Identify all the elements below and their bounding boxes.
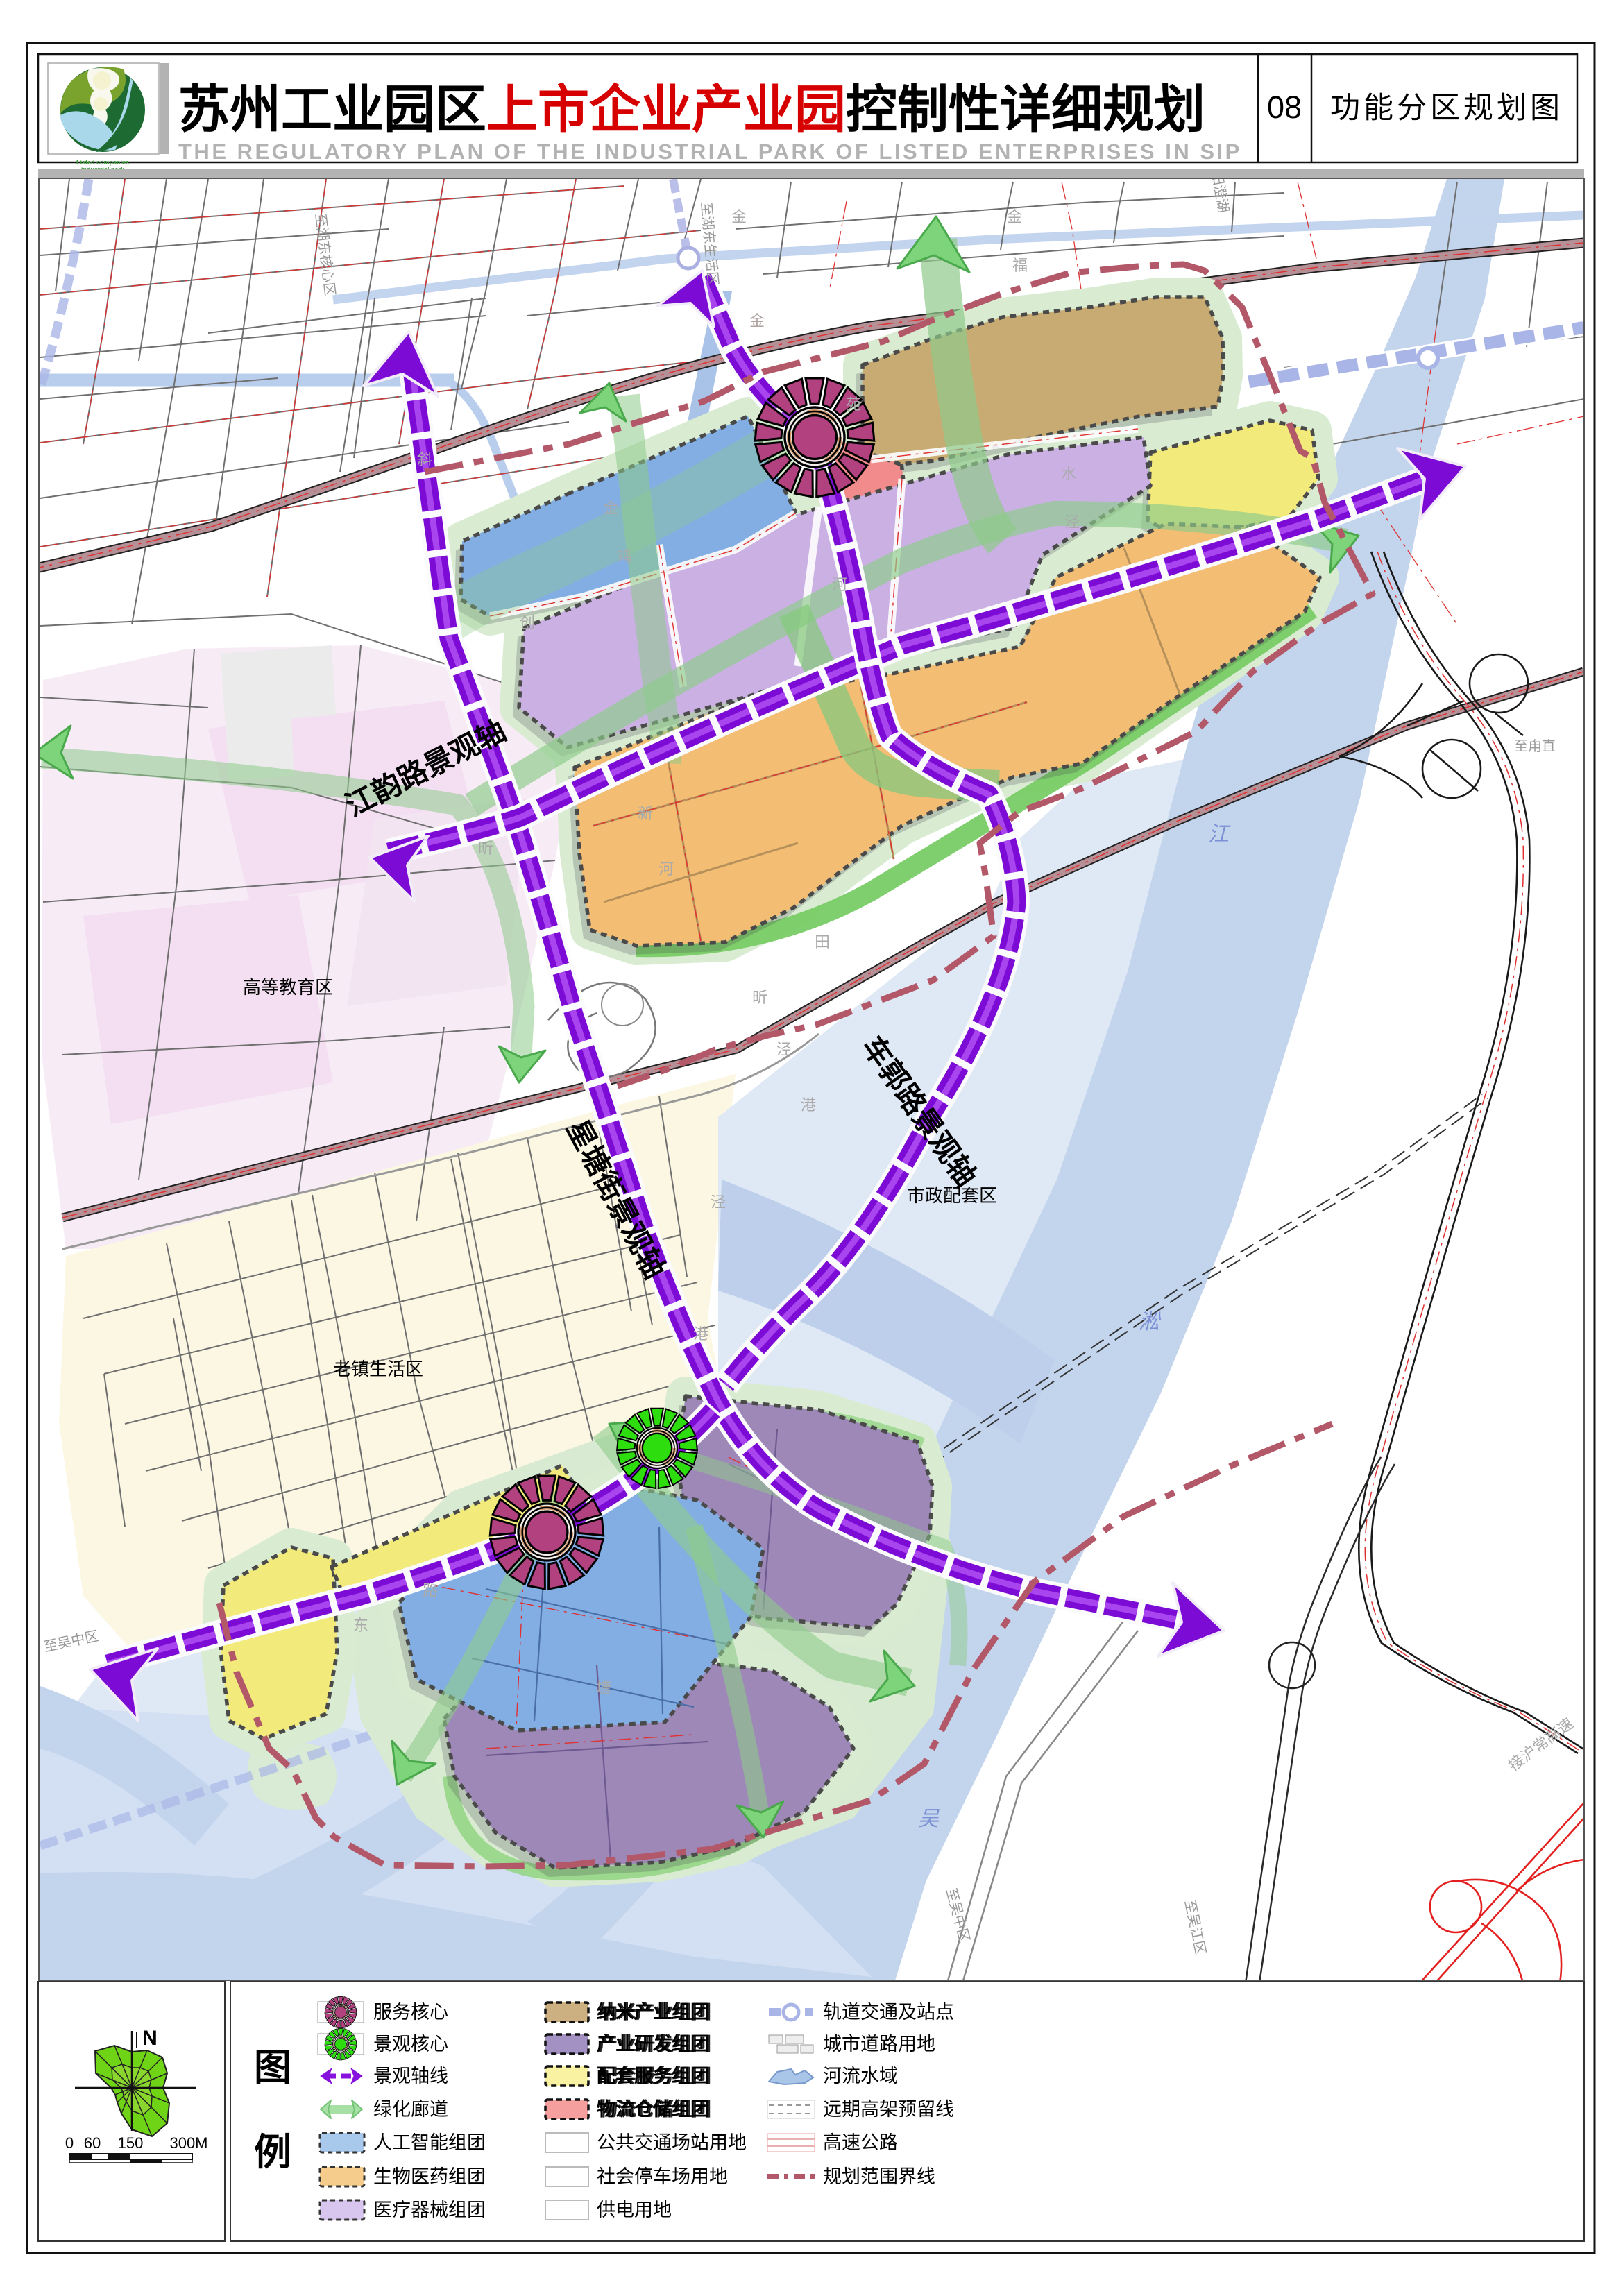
svg-text:河流水域: 河流水域 — [823, 2066, 898, 2086]
svg-text:水: 水 — [1061, 465, 1076, 482]
svg-text:纳米产业组团: 纳米产业组团 — [599, 2001, 711, 2023]
svg-text:08: 08 — [1267, 90, 1302, 125]
svg-text:城市道路用地: 城市道路用地 — [823, 2034, 935, 2055]
svg-text:东: 东 — [353, 1617, 368, 1634]
svg-text:河: 河 — [832, 576, 847, 593]
svg-text:港: 港 — [693, 1325, 708, 1343]
svg-text:吴: 吴 — [918, 1808, 940, 1830]
svg-text:泾: 泾 — [776, 1041, 792, 1058]
svg-text:医疗器械组团: 医疗器械组团 — [373, 2200, 486, 2220]
svg-text:0: 0 — [65, 2134, 74, 2152]
svg-text:Listed companies: Listed companies — [76, 159, 129, 166]
svg-text:河: 河 — [658, 860, 674, 878]
svg-text:生物医药组团: 生物医药组团 — [373, 2166, 486, 2187]
svg-text:例: 例 — [254, 2132, 291, 2173]
svg-text:供电用地: 供电用地 — [597, 2200, 672, 2220]
svg-text:老镇生活区: 老镇生活区 — [333, 1359, 423, 1379]
svg-text:配套服务组团: 配套服务组团 — [599, 2065, 711, 2086]
svg-text:300M: 300M — [169, 2134, 207, 2152]
svg-text:绿化廊道: 绿化廊道 — [373, 2099, 448, 2120]
svg-text:市政配套区: 市政配套区 — [907, 1185, 997, 1206]
svg-text:金: 金 — [1007, 208, 1022, 226]
svg-text:昕: 昕 — [478, 840, 493, 857]
svg-text:路: 路 — [423, 1582, 438, 1599]
svg-text:N: N — [142, 2027, 158, 2050]
svg-text:新: 新 — [638, 805, 653, 822]
svg-text:高速公路: 高速公路 — [823, 2132, 898, 2153]
svg-text:景观轴线: 景观轴线 — [373, 2066, 448, 2086]
svg-text:远期高架预留线: 远期高架预留线 — [823, 2099, 954, 2120]
svg-text:江: 江 — [1208, 823, 1231, 846]
svg-text:鸡: 鸡 — [617, 548, 632, 566]
svg-text:塘: 塘 — [596, 1679, 611, 1697]
svg-text:金: 金 — [749, 312, 765, 330]
svg-text:金: 金 — [731, 208, 747, 226]
svg-text:金: 金 — [603, 500, 618, 517]
svg-text:至甪直: 至甪直 — [1514, 738, 1556, 754]
svg-text:景观核心: 景观核心 — [373, 2034, 448, 2055]
svg-text:高等教育区: 高等教育区 — [243, 977, 333, 998]
svg-text:港: 港 — [801, 1096, 816, 1114]
svg-text:60: 60 — [84, 2134, 101, 2152]
svg-text:公共交通场站用地: 公共交通场站用地 — [597, 2132, 747, 2153]
svg-text:福: 福 — [1012, 257, 1028, 274]
svg-text:田: 田 — [815, 933, 830, 951]
svg-text:淞: 淞 — [1139, 1311, 1162, 1334]
svg-text:产业研发组团: 产业研发组团 — [599, 2033, 711, 2055]
svg-text:150: 150 — [118, 2134, 144, 2152]
svg-text:功能分区规划图: 功能分区规划图 — [1330, 92, 1563, 125]
svg-text:轨道交通及站点: 轨道交通及站点 — [823, 2002, 954, 2023]
svg-text:苑: 苑 — [846, 396, 861, 413]
svg-text:昕: 昕 — [752, 989, 767, 1006]
svg-text:规划范围界线: 规划范围界线 — [823, 2166, 935, 2187]
svg-text:社会停车场用地: 社会停车场用地 — [597, 2166, 728, 2187]
svg-text:THE REGULATORY PLAN OF THE IND: THE REGULATORY PLAN OF THE INDUSTRIAL PA… — [178, 139, 1242, 164]
svg-text:创: 创 — [520, 614, 535, 631]
svg-text:苏州工业园区上市企业产业园控制性详细规划: 苏州工业园区上市企业产业园控制性详细规划 — [178, 80, 1205, 138]
svg-text:斜: 斜 — [417, 451, 432, 468]
svg-text:人工智能组团: 人工智能组团 — [373, 2132, 486, 2153]
svg-text:图: 图 — [254, 2047, 291, 2089]
svg-text:泾: 泾 — [711, 1193, 726, 1211]
svg-text:物流仓储组团: 物流仓储组团 — [599, 2098, 711, 2120]
svg-text:泾: 泾 — [1064, 513, 1080, 531]
svg-text:服务核心: 服务核心 — [373, 2002, 448, 2023]
